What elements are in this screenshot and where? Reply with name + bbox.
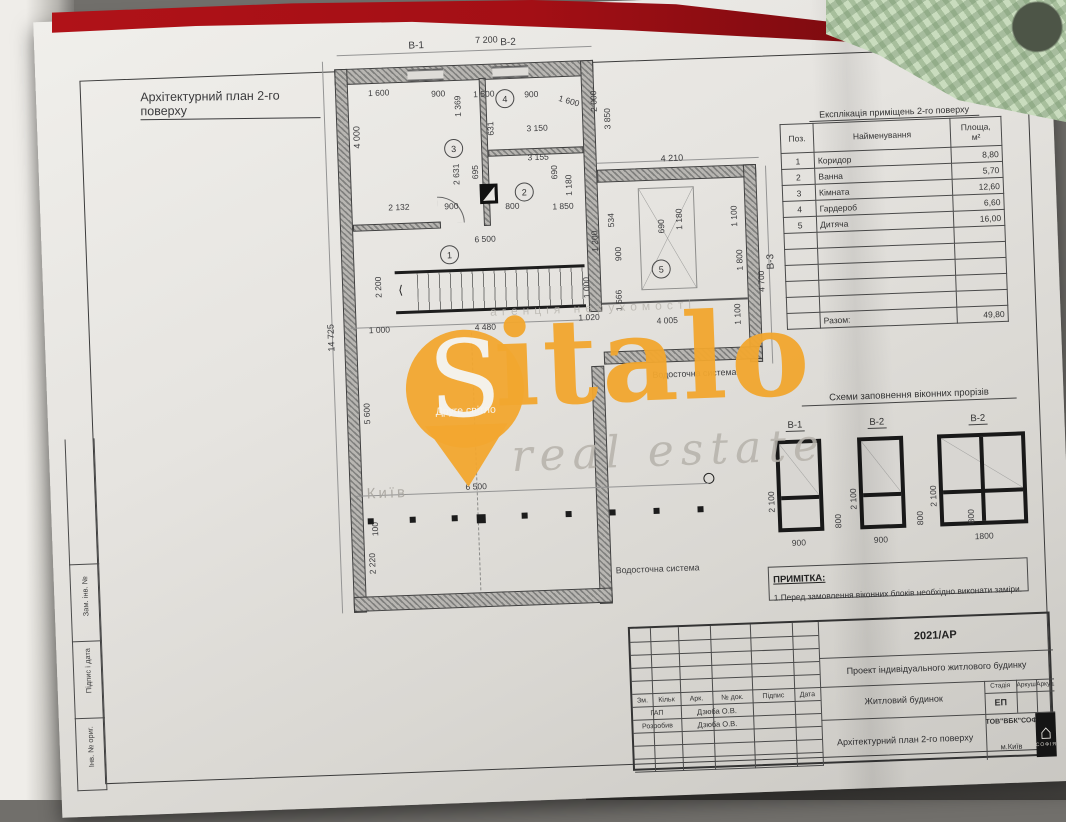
dimension-label: 2 220: [367, 553, 378, 575]
window-pane: [779, 443, 819, 496]
dimension-label: 1 200: [589, 230, 600, 252]
dimension-label: 690: [549, 165, 560, 180]
title-block-line: [635, 752, 823, 760]
sheets-header: Аркушів: [1036, 678, 1054, 691]
explication-cell: 2: [782, 168, 816, 185]
dimension-label: 1 566: [613, 290, 624, 312]
window-height-dim: 2 100: [928, 485, 939, 507]
railing-post: [452, 515, 458, 521]
railing-post: [410, 517, 416, 523]
window-width-dim: 900: [792, 537, 807, 548]
title-block-line: [631, 648, 819, 656]
dimension-label: 2 631: [451, 163, 462, 185]
window-scheme-drawing: [937, 431, 1028, 526]
title-block-line: [632, 674, 820, 682]
explication-cell: 8,80: [951, 145, 1003, 163]
side-stamp-label: Зам. інв. №: [81, 588, 91, 616]
explication-cell: [786, 296, 820, 313]
window-scheme-drawing: [775, 439, 824, 533]
dimension-label: 631: [485, 121, 496, 136]
dimension-label: 1 020: [578, 312, 600, 323]
explication-cell: [784, 232, 818, 249]
dimension-label: 900: [444, 201, 459, 212]
dimension-label: 800: [505, 201, 520, 212]
explication-cell: [785, 248, 819, 265]
explication-cell: [785, 264, 819, 281]
title-block-line: [631, 661, 819, 669]
house-icon: ⌂: [1040, 722, 1053, 742]
company-city: м.Київ: [986, 740, 1036, 754]
title-block-line: [634, 739, 822, 747]
dim-line: [337, 46, 592, 56]
company-name: ТОВ"ВБК"СОФІЯ": [985, 714, 1035, 730]
railing-post: [566, 511, 572, 517]
railing-post: [522, 513, 528, 519]
stair-treads: [417, 267, 586, 310]
explication-cell: 49,80: [957, 305, 1009, 323]
railing-post: [368, 518, 374, 524]
side-stamp-cell: Зам. інв. №: [69, 563, 102, 642]
dimension-label: 6 500: [465, 481, 487, 492]
dimension-label: 4 480: [475, 322, 497, 333]
dimension-label: 4 000: [351, 126, 362, 149]
railing-post: [477, 514, 486, 523]
dimension-label: 2 132: [388, 202, 410, 213]
dimension-label: 695: [470, 165, 481, 180]
window-sill-dim: 800: [966, 509, 977, 524]
dimension-label: 3 850: [602, 108, 613, 130]
company-logo: ⌂СОФІЯ: [1035, 712, 1057, 757]
stamp-name: Дзюба О.В.: [681, 716, 753, 732]
stamp-role: Розробив: [633, 719, 681, 734]
explication-cell: 16,00: [953, 209, 1005, 227]
dimension-label: 1 180: [563, 174, 574, 196]
explication-cell: 1: [781, 152, 815, 169]
dimension-label: 2 000: [588, 90, 599, 112]
dimension-label: 1 100: [732, 303, 743, 325]
stamp-col-header: Дата: [794, 688, 820, 702]
explication-cell: [956, 289, 1008, 307]
dimension-label: 900: [524, 89, 539, 100]
sheet-header: Аркуш: [1016, 679, 1036, 692]
dimension-label: 2 200: [373, 276, 384, 298]
dimension-label: 900: [431, 88, 446, 99]
dimension-label: 1 180: [674, 208, 685, 230]
explication-cell: 6,60: [953, 193, 1005, 211]
window-B2: [492, 65, 528, 78]
explication-cell: 5,70: [952, 161, 1004, 179]
stamp-col-header: Зм.: [632, 694, 652, 708]
dimension-label: 690: [656, 219, 667, 234]
dimension-label: 1 500: [473, 88, 495, 99]
explication-cell: [954, 225, 1006, 243]
railing-post: [697, 506, 703, 512]
shaft-symbol: [479, 183, 498, 204]
dimension-label: 1 600: [368, 87, 390, 98]
explication-cell: [787, 312, 821, 329]
side-stamp-cell: [65, 438, 100, 565]
dimension-label: 1 850: [552, 201, 574, 212]
window-scheme-label: В-2: [968, 413, 987, 426]
explication-cell: [956, 273, 1008, 291]
window-B1: [407, 68, 443, 81]
stamp-col-header: Підпис: [752, 689, 794, 704]
explication-cell: 5: [783, 216, 817, 233]
explication-cell: 12,60: [952, 177, 1004, 195]
dimension-label: 534: [606, 213, 617, 228]
dimension-label: 900: [613, 247, 624, 262]
dimension-label: 3 155: [527, 152, 549, 163]
side-stamp-cell: Інв. № ориг.: [75, 717, 108, 791]
side-stamp-label: Підпис і дата: [83, 665, 93, 693]
dimension-label: 6 500: [474, 234, 496, 245]
explication-cell: [786, 280, 820, 297]
explication-cell: [954, 241, 1006, 259]
page-title: Архітектурний план 2-го поверху: [140, 88, 320, 120]
explication-cell: 4: [783, 200, 817, 217]
dimension-label: 1 800: [734, 249, 745, 271]
dimension-label: 3 150: [526, 123, 548, 134]
railing-post: [609, 509, 615, 515]
title-block-line: [635, 765, 823, 773]
dimension-label: 7 200: [475, 34, 498, 45]
window-sill-dim: 800: [915, 511, 926, 526]
stamp-col-header: Кільк: [652, 693, 680, 707]
dimension-label: 14 725: [326, 324, 337, 352]
dimension-label: 1 000: [581, 277, 592, 299]
window-width-dim: 1800: [975, 531, 994, 542]
dimension-label: 1 369: [452, 95, 463, 117]
explication-header: Поз.: [780, 123, 814, 153]
window-height-dim: 2 100: [766, 491, 777, 513]
dimension-label: 4 210: [660, 153, 683, 164]
dimension-label: В-2: [500, 37, 516, 49]
explication-cell: [955, 257, 1007, 275]
dimension-label: 4 005: [656, 315, 678, 326]
side-stamp-cell: Підпис і дата: [72, 640, 105, 719]
dimension-label: 4 700: [756, 270, 767, 292]
dimension-label: 1 000: [369, 324, 391, 335]
stamp-col-header: Арк.: [680, 692, 712, 706]
dimension-label: 5 600: [361, 403, 372, 425]
stair-direction-arrow: ⟨: [398, 283, 403, 297]
side-stamp-label: Інв. № ориг.: [86, 739, 96, 767]
stage-value: ЕП: [984, 692, 1017, 714]
dimension-label: В-1: [408, 40, 424, 52]
dimension-label: 1 100: [728, 205, 739, 227]
explication-cell: 3: [782, 184, 816, 201]
railing-post: [653, 508, 659, 514]
dimension-label: В-3: [765, 254, 777, 270]
window-scheme-label: В-1: [785, 419, 804, 432]
drawing-sheet: Зам. інв. №Підпис і датаІнв. № ориг. Арх…: [33, 0, 1066, 818]
explication-header: Площа, м²: [950, 116, 1002, 147]
note-title: ПРИМІТКА:: [773, 573, 826, 586]
title-block-line: [630, 635, 818, 643]
